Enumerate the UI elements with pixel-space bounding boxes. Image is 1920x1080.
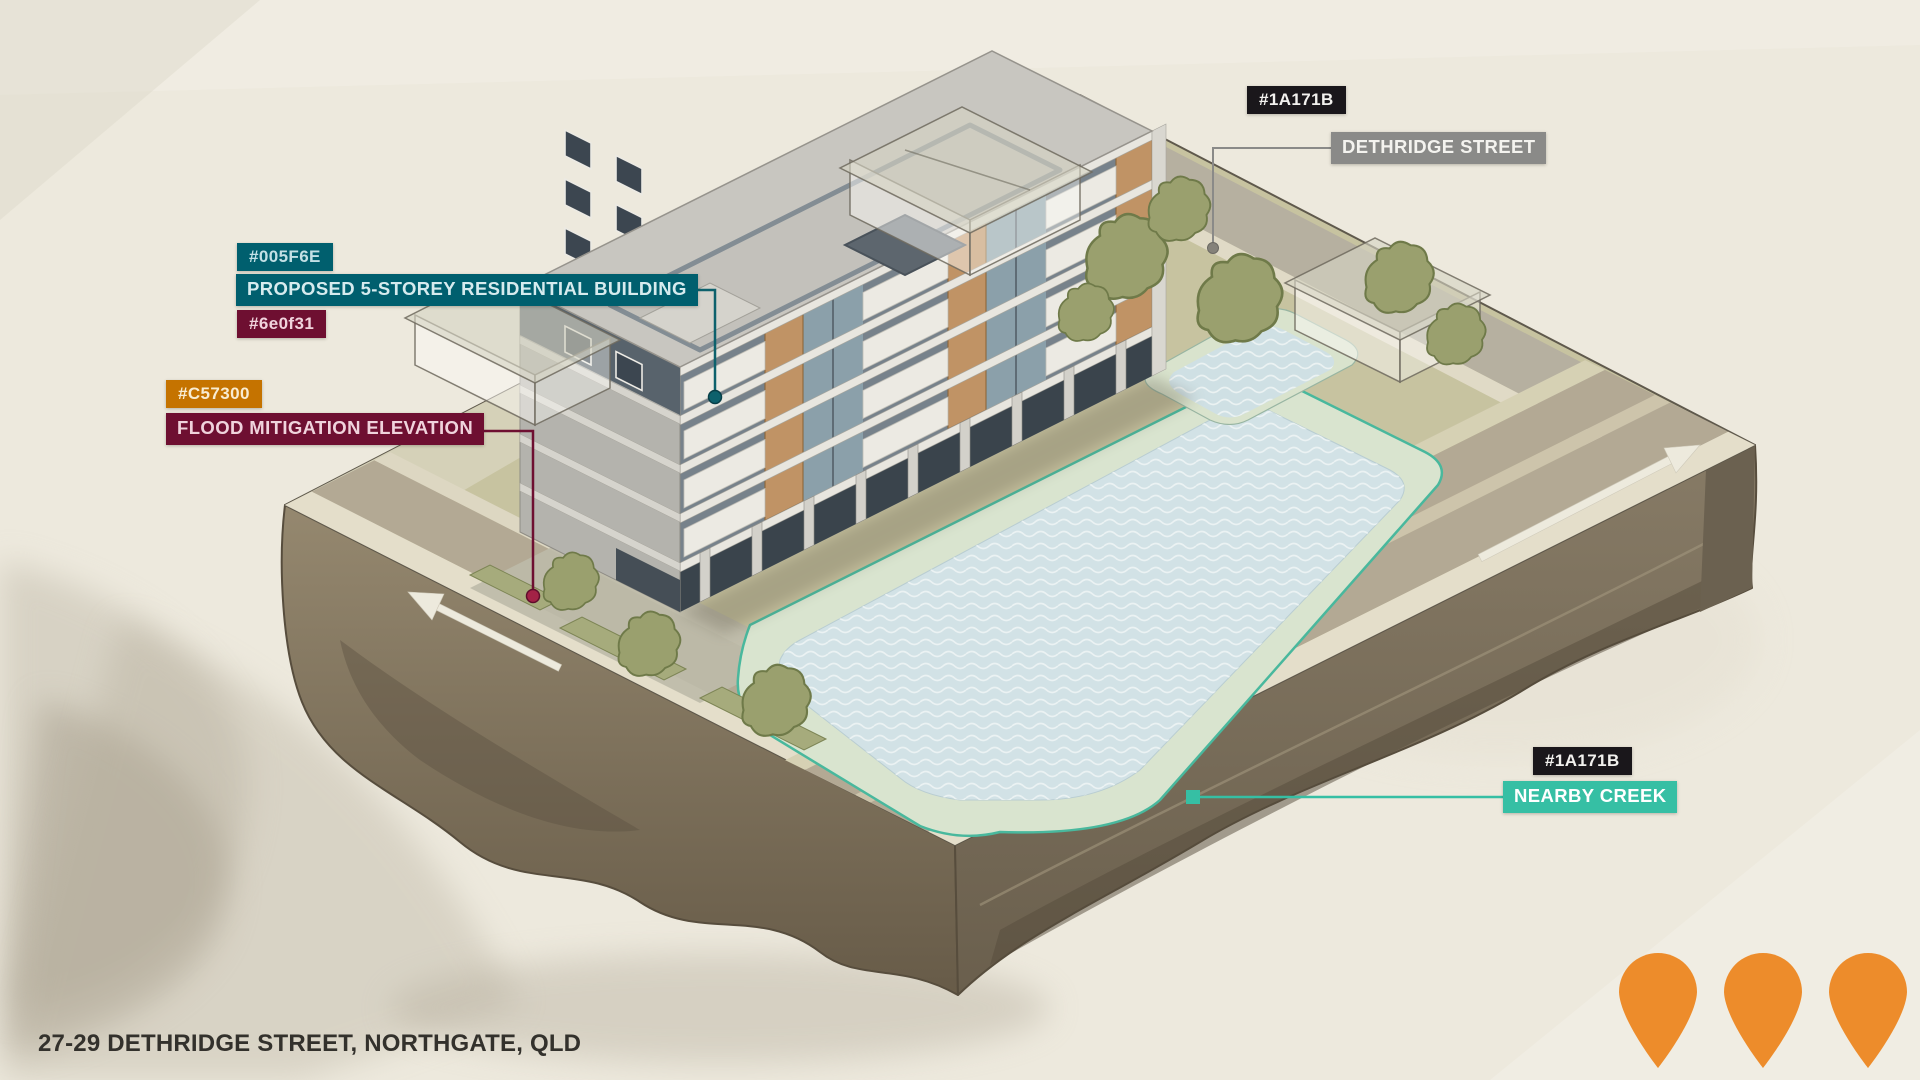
leader-dot-creek <box>1186 790 1200 804</box>
color-chip-building-secondary: #6e0f31 <box>237 310 326 338</box>
leader-dot-street <box>1208 243 1219 254</box>
callout-label-street: DETHRIDGE STREET <box>1331 132 1546 164</box>
color-chip-flood: #C57300 <box>166 380 262 408</box>
callout-label-flood: FLOOD MITIGATION ELEVATION <box>166 413 484 445</box>
leader-dot-flood <box>527 590 540 603</box>
leader-dot-building <box>709 391 722 404</box>
callout-label-creek: NEARBY CREEK <box>1503 781 1677 813</box>
color-chip-street: #1A171B <box>1247 86 1346 114</box>
isometric-site-illustration <box>0 0 1920 1080</box>
site-address: 27-29 DETHRIDGE STREET, NORTHGATE, QLD <box>38 1030 581 1058</box>
terrain-corner-facet <box>1700 445 1755 612</box>
site-diagram: #1A171B DETHRIDGE STREET #005F6E PROPOSE… <box>0 0 1920 1080</box>
color-chip-creek: #1A171B <box>1533 747 1632 775</box>
map-pins <box>1619 953 1907 1068</box>
color-chip-building-primary: #005F6E <box>237 243 333 271</box>
callout-label-building: PROPOSED 5-STOREY RESIDENTIAL BUILDING <box>236 274 698 306</box>
